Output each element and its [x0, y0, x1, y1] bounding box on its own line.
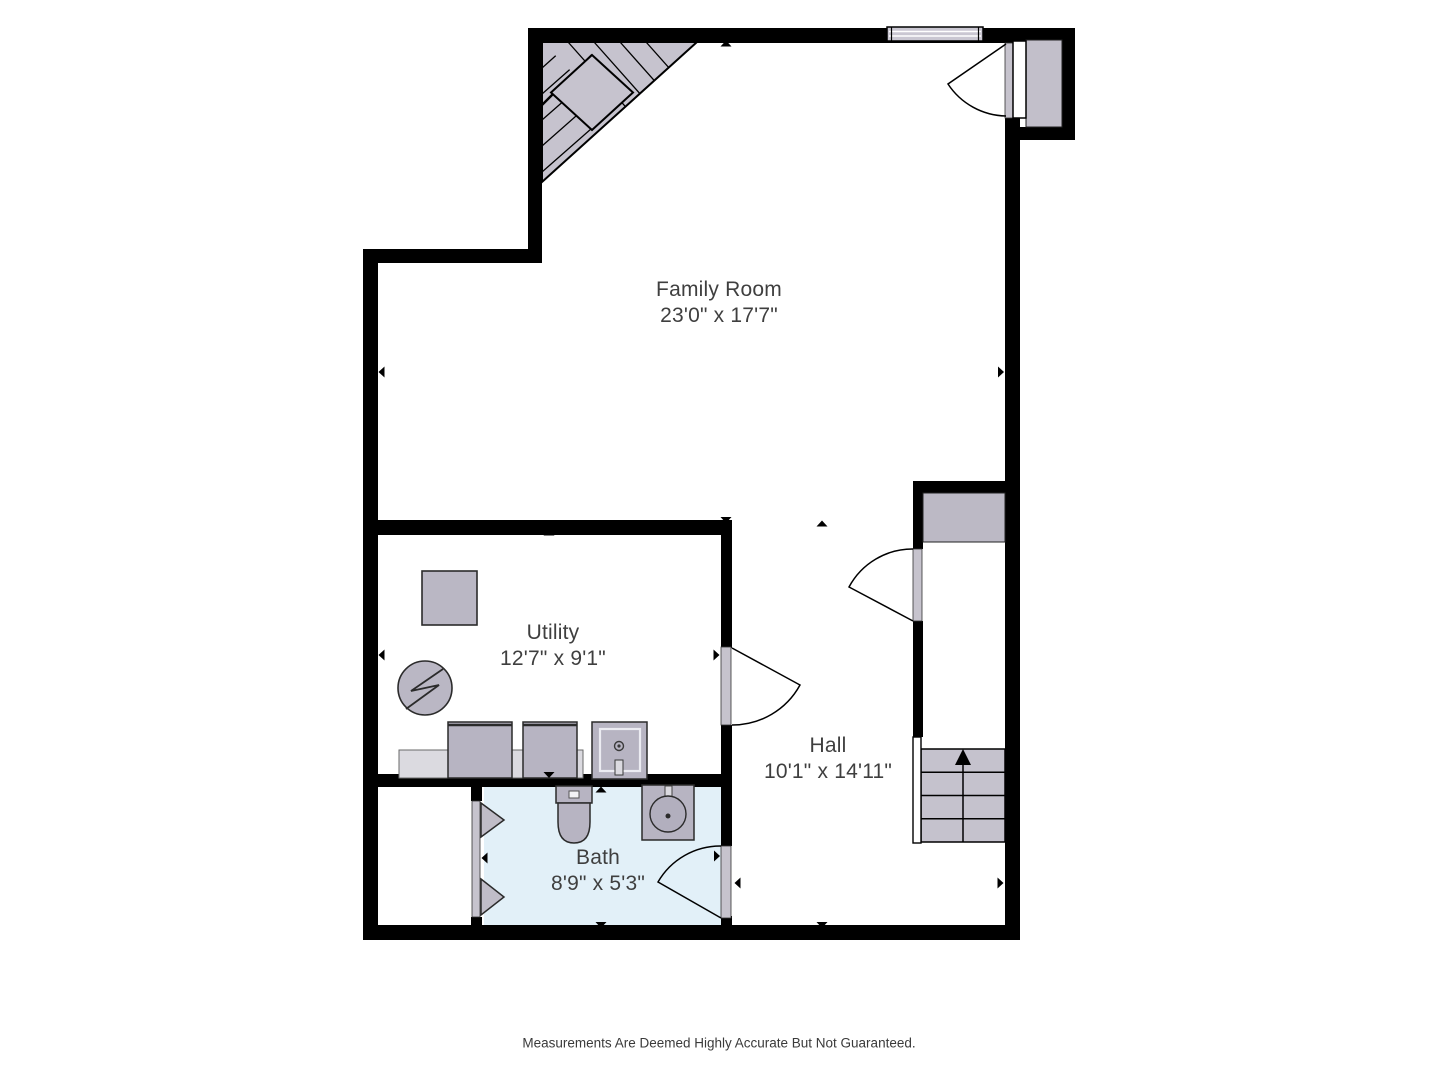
- disclaimer-text: Measurements Are Deemed Highly Accurate …: [522, 1036, 915, 1051]
- room-dimensions-family-room: 23'0" x 17'7": [656, 303, 782, 329]
- staircase-up: [913, 737, 1005, 843]
- storage-tank: [422, 571, 477, 625]
- room-name-hall: Hall: [764, 733, 892, 759]
- wall-top: [528, 28, 1075, 43]
- window: [887, 27, 983, 41]
- utility-door: [721, 647, 800, 725]
- wall-landing-right: [1062, 28, 1075, 140]
- winder-stairs: [542, 42, 726, 182]
- closet-door: [849, 549, 922, 621]
- washer: [448, 722, 512, 778]
- room-dimensions-hall: 10'1" x 14'11": [764, 759, 892, 785]
- sink: [642, 785, 694, 840]
- toilet: [556, 786, 592, 843]
- wall-right: [1005, 118, 1020, 940]
- laundry-sink: [592, 722, 647, 779]
- wall-closet-top: [913, 481, 1020, 493]
- marker-hall-right: [998, 878, 1004, 889]
- water-heater: [398, 661, 452, 715]
- room-dimensions-bath: 8'9" x 5'3": [551, 871, 645, 897]
- exterior-landing: [1026, 40, 1062, 127]
- room-label-utility: Utility 12'7" x 9'1": [500, 620, 606, 672]
- stair-railing: [913, 737, 921, 843]
- room-label-bath: Bath 8'9" x 5'3": [551, 845, 645, 897]
- room-dimensions-utility: 12'7" x 9'1": [500, 646, 606, 672]
- room-label-family-room: Family Room 23'0" x 17'7": [656, 277, 782, 329]
- marker-hall-left: [735, 878, 741, 889]
- marker-utility-left: [379, 650, 385, 661]
- room-name-bath: Bath: [551, 845, 645, 871]
- wall-left: [363, 249, 378, 940]
- wall-left-upper: [528, 28, 542, 263]
- floor-plan-drawing: [0, 0, 1440, 1080]
- wall-utility-right-a: [721, 520, 732, 648]
- wall-closet-left-a: [913, 481, 923, 549]
- marker-hall-top: [817, 521, 828, 527]
- marker-utility-right: [714, 650, 720, 661]
- utility-fixtures: [398, 571, 647, 779]
- wall-bath-divider-b: [471, 917, 482, 930]
- wall-bath-divider-a: [471, 786, 482, 801]
- dryer: [523, 722, 577, 778]
- wall-bottom: [363, 925, 1020, 940]
- wall-bath-right-a: [721, 786, 732, 846]
- entry-door: [948, 41, 1026, 118]
- closet-shelf: [923, 493, 1005, 542]
- room-label-hall: Hall 10'1" x 14'11": [764, 733, 892, 785]
- wall-closet-left-b: [913, 621, 923, 737]
- room-name-family-room: Family Room: [656, 277, 782, 303]
- wall-landing-bottom: [1008, 127, 1075, 140]
- marker-family-right: [998, 367, 1004, 378]
- floor-plan: Family Room 23'0" x 17'7" Utility 12'7" …: [0, 0, 1440, 1080]
- room-name-utility: Utility: [500, 620, 606, 646]
- wall-step: [363, 249, 542, 263]
- marker-family-left: [379, 367, 385, 378]
